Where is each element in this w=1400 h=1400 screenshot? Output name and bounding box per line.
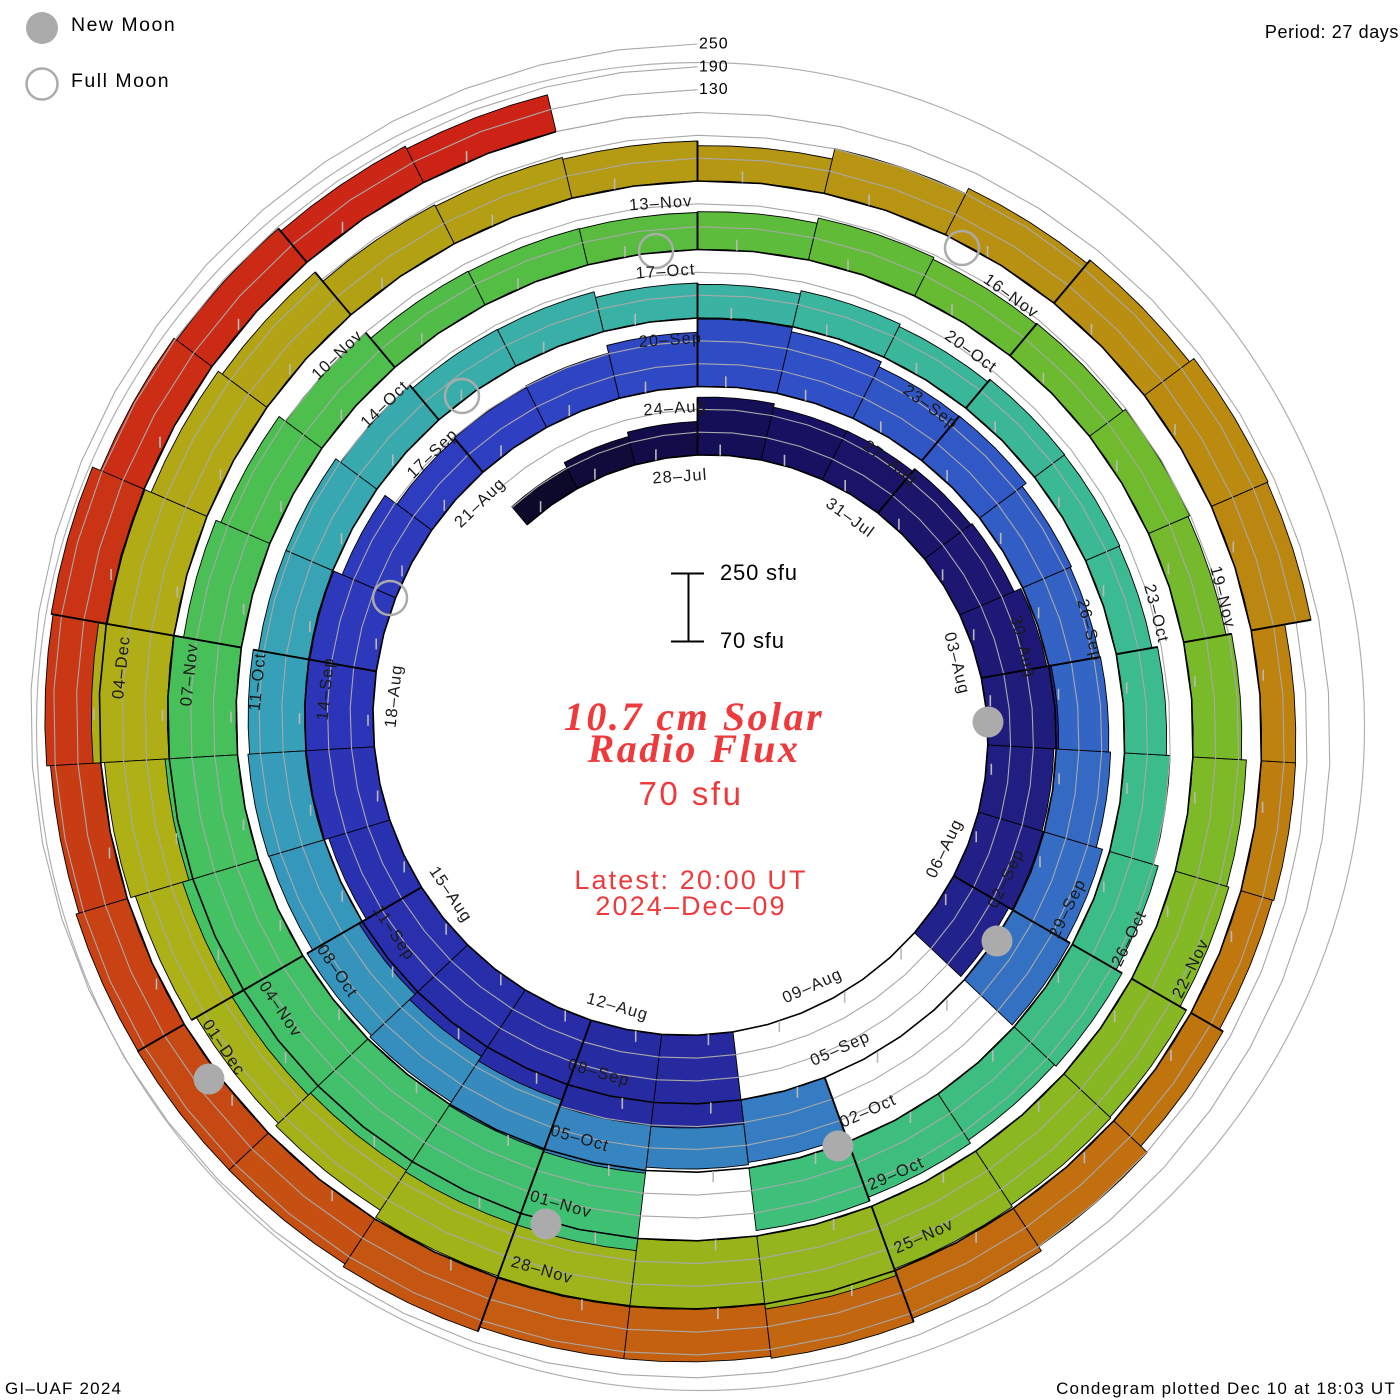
svg-text:190: 190 <box>699 58 729 75</box>
svg-text:Condegram plotted Dec 10 at 18: Condegram plotted Dec 10 at 18:03 UT <box>1056 1379 1396 1398</box>
svg-text:New Moon: New Moon <box>71 14 176 36</box>
svg-text:28–Jul: 28–Jul <box>652 466 708 488</box>
svg-text:Full Moon: Full Moon <box>71 70 170 92</box>
svg-text:Period: 27 days: Period: 27 days <box>1265 22 1399 42</box>
svg-text:70 sfu: 70 sfu <box>720 628 785 653</box>
svg-text:70 sfu: 70 sfu <box>639 775 744 812</box>
svg-text:GI–UAF 2024: GI–UAF 2024 <box>5 1379 122 1398</box>
svg-text:250 sfu: 250 sfu <box>720 560 798 585</box>
svg-text:2024–Dec–09: 2024–Dec–09 <box>595 891 786 921</box>
svg-text:Radio Flux: Radio Flux <box>587 726 801 771</box>
svg-text:250: 250 <box>699 36 729 53</box>
svg-text:130: 130 <box>699 81 729 98</box>
